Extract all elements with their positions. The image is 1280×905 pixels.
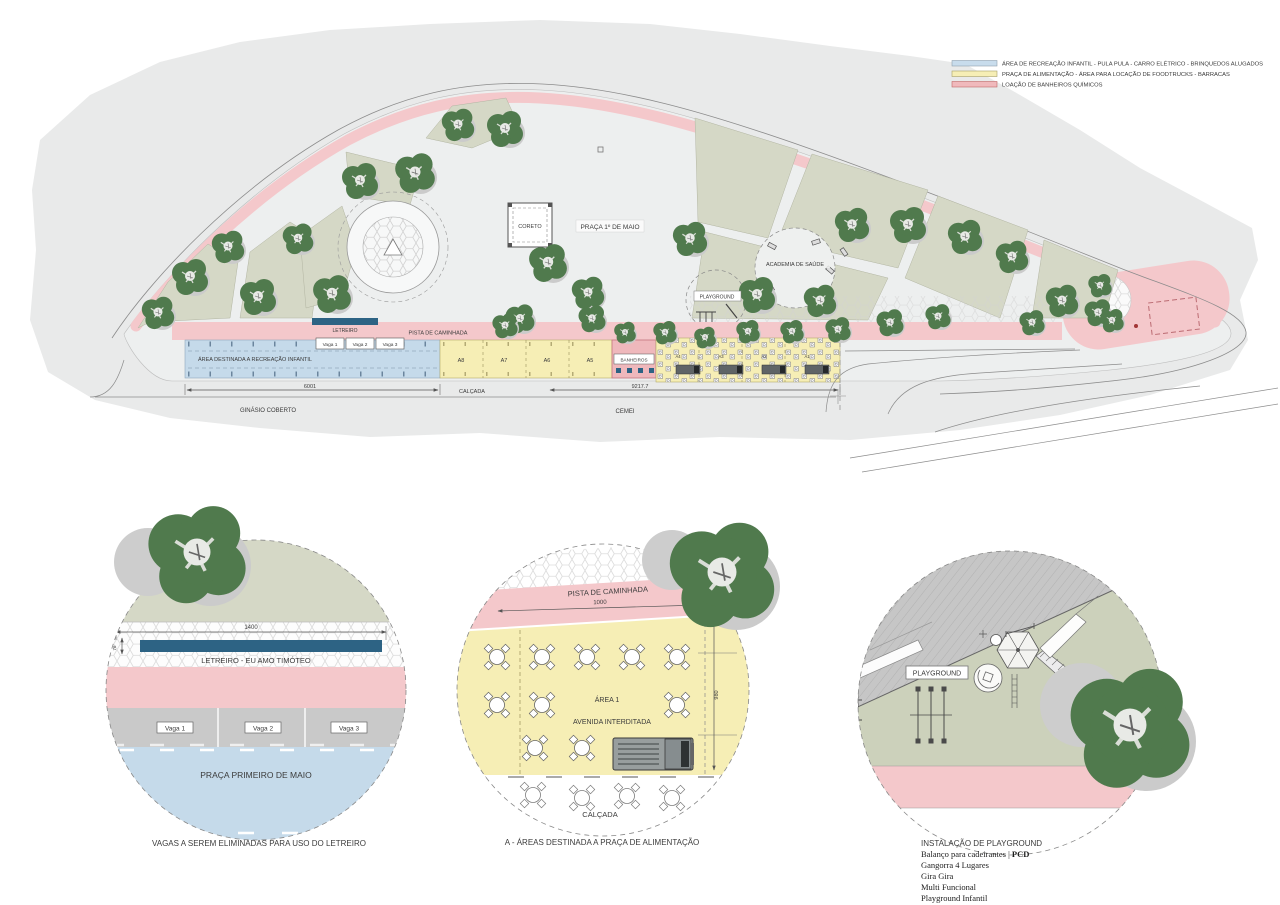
tree-icon — [579, 305, 608, 333]
letreiro-bar — [312, 318, 378, 325]
detail-letreiro: 1400 76 LETREIRO - EU AMO TIMÓTEO Vaga 1… — [100, 506, 415, 842]
tree-icon — [948, 220, 984, 255]
label-vaga2: Vaga 2 — [353, 342, 368, 348]
label-a2: A2 — [761, 354, 767, 359]
tree-icon — [877, 309, 906, 337]
d1-vaga2: Vaga 2 — [253, 726, 274, 733]
caption-playground-line2: Gangorra 4 Lugares — [921, 860, 989, 870]
site-plan-canvas: PRAÇA 1º DE MAIO CORETO ACADEMIA DE SAÚD… — [0, 0, 1280, 905]
legend-swatch-banheiros — [952, 82, 997, 88]
tree-icon — [395, 153, 437, 194]
d1-vaga3: Vaga 3 — [339, 726, 360, 733]
marker-dot — [1134, 324, 1138, 328]
tree-icon — [240, 279, 278, 316]
detail-alimentacao: PISTA DE CAMINHADA 1000 980 ÁREA 1 AVENI… — [455, 523, 780, 840]
foodtruck-icon — [613, 738, 694, 770]
label-calcada: CALÇADA — [459, 389, 485, 395]
label-a5: A5 — [587, 358, 594, 364]
tree-icon — [736, 320, 761, 344]
d2-avenida: AVENIDA INTERDITADA — [573, 719, 651, 726]
tree-icon — [313, 275, 353, 314]
d1-dim-1400: 1400 — [244, 625, 258, 631]
d3-playground: PLAYGROUND — [913, 671, 962, 678]
caption-playground-line4: Multi Funcional — [921, 882, 977, 892]
legend-label-recreacao: ÁREA DE RECREAÇÃO INFANTIL - PULA PULA -… — [1002, 61, 1263, 68]
d1-praca: PRAÇA PRIMEIRO DE MAIO — [200, 770, 312, 780]
d2-dim-980: 980 — [714, 690, 720, 699]
tree-icon — [670, 523, 780, 630]
dim-9217: 9217.7 — [632, 384, 649, 390]
tree-icon — [804, 285, 838, 318]
plan-sheet: PRAÇA 1º DE MAIO CORETO ACADEMIA DE SAÚD… — [0, 0, 1280, 905]
caption-playground-line5: Playground Infantil — [921, 893, 988, 903]
d1-letreiro-text: LETREIRO - EU AMO TIMÓTEO — [201, 656, 311, 665]
letreiro-sign-bar — [140, 640, 382, 652]
tree-icon — [996, 241, 1030, 274]
tree-icon — [487, 111, 525, 148]
label-coreto: CORETO — [518, 224, 542, 230]
label-a6: A6 — [544, 358, 551, 364]
dim-6001: 6001 — [304, 384, 316, 390]
detail-playground: PLAYGROUND — [830, 530, 1196, 878]
label-letreiro-strip: LETREIRO — [332, 328, 357, 334]
tree-icon — [890, 207, 928, 244]
tree-icon — [614, 322, 637, 344]
tree-icon — [835, 208, 871, 243]
legend-label-banheiros: LOAÇÃO DE BANHEIROS QUÍMICOS — [1002, 82, 1103, 89]
label-a7: A7 — [501, 358, 508, 364]
tree-icon — [1019, 310, 1046, 336]
d2-dim-1000: 1000 — [593, 600, 607, 606]
caption-playground-line1: Balanço para cadeirantes | PCD — [921, 849, 1029, 859]
tree-icon — [673, 222, 709, 257]
tree-icon — [148, 506, 251, 606]
label-playground: PLAYGROUND — [700, 295, 735, 301]
caption-alimentacao: A - ÁREAS DESTINADA A PRAÇA DE ALIMENTAÇ… — [505, 838, 700, 847]
label-academia: ACADEMIA DE SAÚDE — [766, 261, 824, 268]
tree-icon — [442, 109, 476, 142]
label-vaga3: Vaga 3 — [383, 342, 398, 348]
tree-icon — [1088, 274, 1113, 298]
d2-area1: ÁREA 1 — [595, 695, 620, 704]
ladder-icon — [1012, 674, 1017, 708]
label-cemei: CEMEI — [615, 409, 634, 415]
label-pista-strip: PISTA DE CAMINHADA — [409, 331, 468, 337]
label-a4: A4 — [675, 354, 681, 359]
legend-label-alimentacao: PRAÇA DE ALIMENTAÇÃO - ÁREA PARA LOCAÇÃO… — [1002, 71, 1230, 78]
legend-swatch-alimentacao — [952, 71, 997, 77]
caption-playground-block: INSTALAÇÃO DE PLAYGROUND Balanço para ca… — [921, 839, 1042, 903]
label-a3: A3 — [718, 354, 724, 359]
pole-top-icon — [991, 635, 1002, 646]
label-recreacao: ÁREA DESTINADA A RECREAÇÃO INFANTIL — [198, 356, 312, 363]
label-ginasio: GINÁSIO COBERTO — [240, 407, 296, 414]
strip-foodcourt — [656, 338, 840, 382]
tree-icon — [1100, 309, 1125, 333]
tree-icon — [172, 259, 210, 296]
tree-icon — [694, 327, 717, 349]
tree-icon — [142, 297, 176, 330]
tree-icon — [212, 231, 246, 264]
d1-vaga1: Vaga 1 — [165, 726, 186, 733]
tree-icon — [825, 317, 852, 343]
tree-icon — [925, 304, 952, 330]
gira-gira-icon — [974, 664, 1002, 692]
tree-icon — [1046, 285, 1080, 318]
tree-icon — [1071, 669, 1196, 791]
tree-icon — [342, 163, 380, 200]
tree-icon — [283, 224, 315, 255]
caption-letreiro: VAGAS A SEREM ELIMINADAS PARA USO DO LET… — [152, 839, 366, 848]
caption-playground-title: INSTALAÇÃO DE PLAYGROUND — [921, 839, 1042, 848]
label-praca: PRAÇA 1º DE MAIO — [580, 224, 639, 231]
legend-swatch-recreacao — [952, 61, 997, 67]
label-a1: A1 — [804, 354, 810, 359]
tree-icon — [572, 277, 606, 310]
d2-calcada: CALÇADA — [582, 810, 617, 819]
label-vaga1: Vaga 1 — [323, 342, 338, 348]
tree-icon — [529, 244, 569, 283]
tree-icon — [739, 277, 777, 314]
tree-icon — [492, 313, 519, 339]
tree-icon — [653, 321, 678, 345]
label-a8: A8 — [458, 358, 465, 364]
tree-icon — [780, 320, 805, 344]
caption-playground-line3: Gira Gira — [921, 871, 954, 881]
label-banheiros: BANHEIROS — [620, 358, 647, 363]
